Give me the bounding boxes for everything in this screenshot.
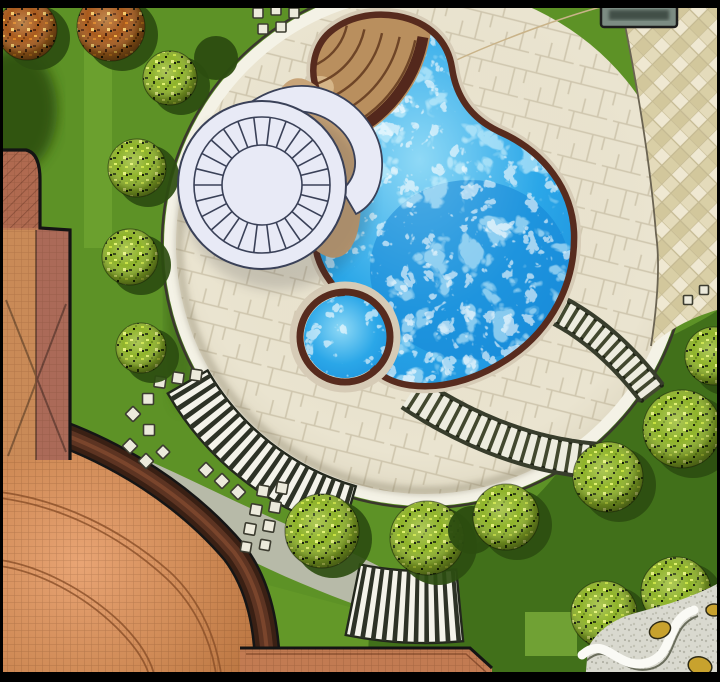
- tree-canopy-shading: [108, 139, 166, 197]
- stepping-stone: [269, 501, 282, 514]
- tree-canopy-shading: [473, 484, 539, 550]
- tree-canopy-shading: [573, 442, 643, 512]
- stepping-stone: [276, 482, 289, 495]
- stepping-stone: [240, 541, 252, 553]
- stepping-stone: [289, 8, 299, 18]
- letterbox-top: [0, 0, 720, 8]
- tree-canopy-shading: [116, 323, 166, 373]
- tree-canopy-shading: [285, 494, 359, 568]
- watermark-smudge: [609, 10, 669, 20]
- stepping-stone: [258, 24, 268, 34]
- lawn-light-patch: [525, 612, 577, 656]
- tree-canopy-shading: [102, 229, 158, 285]
- stepping-stone: [263, 520, 276, 533]
- stepping-stone: [143, 394, 154, 405]
- planter-texture: [240, 648, 492, 672]
- stepping-stone: [244, 523, 257, 536]
- stepping-stone: [190, 369, 202, 381]
- tree-canopy-shading: [643, 390, 720, 468]
- letterbox-bottom: [0, 672, 720, 682]
- stepping-stone: [172, 372, 184, 384]
- stepping-stone: [257, 485, 270, 498]
- tree-canopy-shading: [143, 51, 197, 105]
- stepping-stone: [276, 22, 286, 32]
- edge-left: [0, 0, 3, 682]
- shrub-shadow: [194, 36, 238, 80]
- planter-wall: [240, 648, 492, 672]
- site-plan-screenshot: [0, 0, 720, 682]
- stepping-stone: [700, 286, 709, 295]
- stepping-stone: [253, 8, 263, 18]
- tree-shadow: [194, 36, 238, 80]
- stepping-stone: [250, 504, 263, 517]
- stepping-stone: [684, 296, 693, 305]
- landscape-plan-rendering: [0, 0, 720, 682]
- stepping-stone: [259, 539, 271, 551]
- spa-pool: [295, 287, 395, 387]
- stepping-stone: [144, 425, 155, 436]
